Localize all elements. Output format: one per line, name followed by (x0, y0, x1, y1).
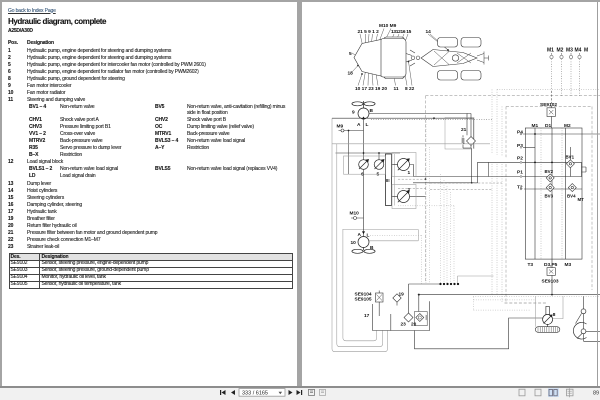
svg-text:SE9103: SE9103 (542, 279, 559, 285)
svg-text:11: 11 (394, 86, 399, 92)
svg-text:10 17 23 19 20: 10 17 23 19 20 (355, 86, 387, 92)
svg-text:L: L (366, 122, 369, 128)
svg-text:BV4: BV4 (567, 194, 576, 199)
svg-text:8 22: 8 22 (405, 86, 415, 92)
svg-text:2: 2 (408, 187, 411, 193)
svg-text:89: 89 (593, 391, 599, 397)
svg-text:M1: M1 (547, 48, 554, 54)
svg-text:17: 17 (364, 313, 370, 319)
svg-text:SE9105: SE9105 (355, 297, 372, 303)
svg-text:M10 M9: M10 M9 (379, 23, 397, 29)
svg-text:BV1: BV1 (566, 154, 575, 159)
svg-text:1: 1 (408, 170, 411, 176)
svg-text:BV3: BV3 (545, 194, 554, 199)
svg-text:333 / 6165: 333 / 6165 (242, 391, 268, 397)
svg-text:8: 8 (553, 312, 556, 318)
svg-text:M: M (584, 48, 588, 54)
svg-text:23: 23 (401, 322, 407, 328)
svg-text:9: 9 (352, 110, 355, 116)
svg-text:M3: M3 (566, 48, 573, 54)
svg-text:P1: P1 (517, 170, 523, 176)
svg-text:MT: MT (578, 197, 585, 202)
svg-text:5: 5 (377, 172, 380, 178)
svg-text:B: B (370, 108, 374, 114)
svg-text:M2: M2 (557, 48, 564, 54)
svg-text:21 5 9 1 2: 21 5 9 1 2 (358, 29, 380, 35)
svg-text:M9: M9 (337, 124, 344, 130)
svg-text:21: 21 (461, 127, 467, 133)
svg-text:P2: P2 (517, 156, 523, 162)
svg-text:L: L (367, 233, 370, 239)
svg-text:M3: M3 (565, 262, 572, 268)
svg-text:20: 20 (411, 322, 417, 328)
svg-text:B: B (370, 245, 374, 251)
svg-text:M10: M10 (350, 211, 360, 217)
svg-text:III: III (386, 178, 390, 183)
svg-text:P3: P3 (517, 143, 523, 149)
svg-text:A: A (357, 122, 361, 128)
svg-text:D3,P5: D3,P5 (544, 262, 558, 268)
svg-text:T2: T2 (517, 185, 523, 191)
svg-text:5: 5 (349, 51, 352, 57)
svg-text:M4: M4 (575, 48, 582, 54)
svg-text:BV2: BV2 (545, 169, 554, 174)
svg-text:A: A (358, 232, 362, 238)
svg-text:10: 10 (351, 240, 357, 246)
svg-text:T3: T3 (528, 262, 534, 268)
svg-text:SE9102: SE9102 (540, 102, 557, 108)
